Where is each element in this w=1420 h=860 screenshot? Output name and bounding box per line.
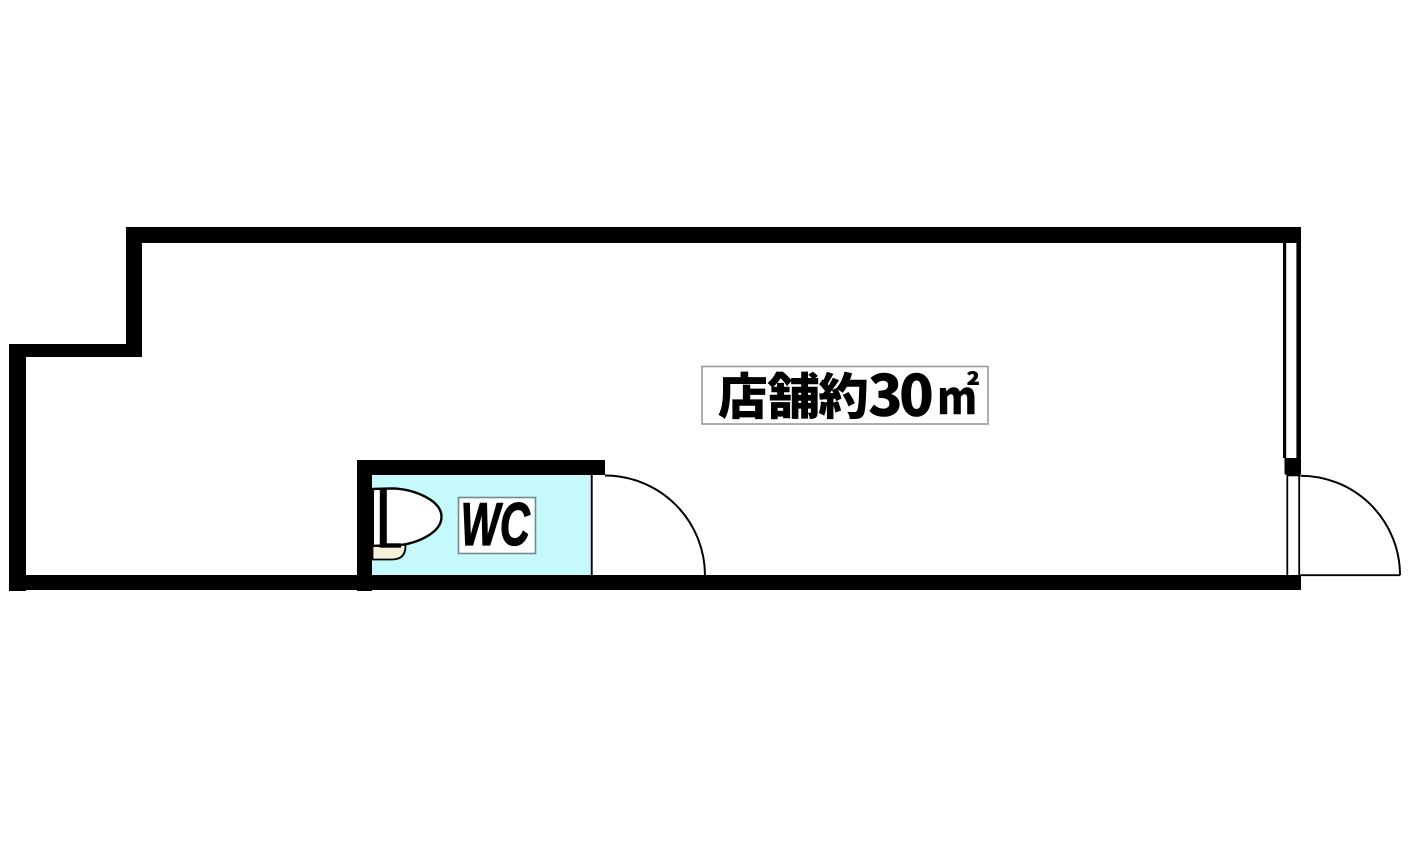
svg-text:WC: WC: [461, 490, 531, 558]
